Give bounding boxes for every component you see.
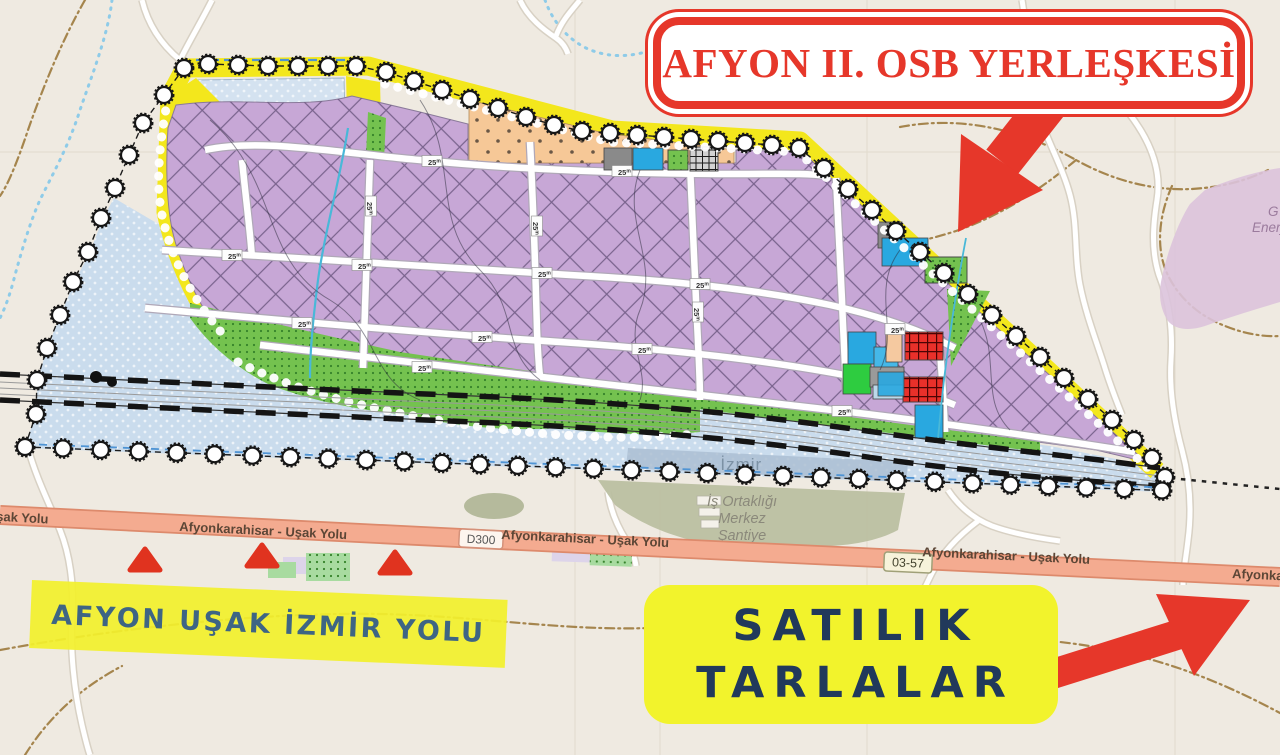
route-badge-d300: D300	[459, 529, 504, 549]
road-callout-text: AFYON UŞAK İZMİR YOLU	[51, 599, 486, 648]
road-width-label: 25m	[352, 260, 372, 272]
road-width-label: 25m	[222, 250, 242, 262]
energy-label-line2: Enerji	[1252, 220, 1280, 235]
fields-for-sale-callout: SATILIK TARLALAR	[644, 585, 1058, 724]
road-width-label: 25m	[832, 406, 852, 418]
road-width-label: 25m	[365, 196, 377, 216]
site-office-label-line2: Merkez	[718, 511, 766, 527]
annotated-map-image: G Enerji İş Ortaklığı Merkez Şantiye - İ…	[0, 0, 1280, 755]
svg-text:03-57: 03-57	[892, 555, 925, 570]
road-width-label: 25m	[472, 332, 492, 344]
svg-text:D300: D300	[466, 532, 496, 547]
road-width-label: 25m	[532, 268, 552, 280]
road-width-label: 25m	[531, 216, 543, 236]
road-width-label: 25m	[412, 362, 432, 374]
energy-label-line1: G	[1268, 204, 1279, 219]
title-callout-text: AFYON II. OSB YERLEŞKESİ	[662, 39, 1235, 87]
fields-for-sale-line1: SATILIK	[724, 598, 979, 655]
road-width-label: 25m	[692, 302, 704, 322]
road-width-label: 25m	[422, 156, 442, 168]
title-callout: AFYON II. OSB YERLEŞKESİ	[653, 17, 1245, 109]
site-office-label-line1: İş Ortaklığı	[707, 493, 777, 510]
fields-for-sale-line2: TARLALAR	[687, 655, 1015, 712]
road-width-label: 25m	[292, 318, 312, 330]
road-width-label: 25m	[690, 279, 710, 291]
road-width-label: 25m	[632, 344, 652, 356]
road-width-label: 25m	[612, 166, 632, 178]
road-width-label: 25m	[885, 324, 905, 336]
highway-label-left-partial: şak Yolu	[0, 509, 49, 527]
